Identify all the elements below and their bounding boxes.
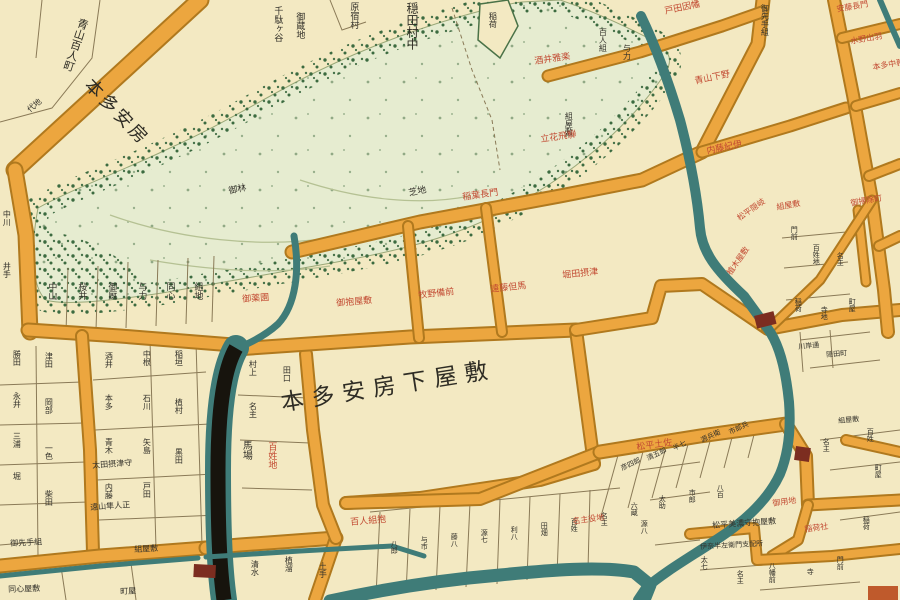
map-label-black: 馬場 [240,440,250,460]
map-label-black: 御林 [228,184,248,197]
map-label-black: 八百 [716,484,723,498]
map-label-black: 稲垣 [174,350,182,366]
map-label-black: 松平美濃守抱屋敷 [712,518,776,531]
map-label-black: 百人組 [598,28,606,52]
map-label-red: 内藤紀伊 [706,141,743,158]
map-label-black: 原宿村 [348,2,357,29]
map-label-black: 清水 [250,560,258,576]
map-label-black: 稲荷 [794,298,801,312]
map-label-black: 田畑 [540,522,547,536]
map-label-black: 百姓地 [812,244,819,265]
map-label-black: 芝地 [408,186,428,199]
map-label-red: 稲葉長門 [462,189,499,203]
map-label-red: 安藤長門 [836,0,869,14]
map-label-black: 組屋敷 [838,416,860,425]
village-name-label: 穏田村中 [404,2,421,50]
map-label-black: 一色 [44,444,52,460]
map-label-black: 隠田町 [826,350,848,359]
map-label-red: 組屋敷 [776,200,801,212]
map-label-black: 町屋 [120,587,136,596]
map-label-black: 村上 [248,360,256,376]
map-label-red: 本多中務 [872,58,900,72]
map-label-black: 勝田 [12,350,20,366]
map-label-black: 岡部 [44,398,52,414]
map-label-red: 御薬園 [242,294,270,305]
map-label-black: 与市 [420,536,427,550]
map-label-black: 町屋 [848,298,855,312]
map-label-red: 酒井雅楽 [534,53,571,67]
map-label-black: 千駄ヶ谷 [272,6,281,42]
map-label-black: 八幡前 [768,562,775,583]
map-label-black: 柴田 [44,490,52,506]
map-label-red: 水野出羽 [850,32,883,46]
edo-kiriezu-map: 本多安房下屋敷 本多安房 穏田村中 青山百人町 千駄ヶ谷御蔵地原宿村稲荷御先手組… [0,0,900,600]
map-label-black: 植村 [174,398,182,414]
map-label-red: 牧野備前 [418,288,455,301]
street-name-label: 青山百人町 [59,16,91,73]
map-label-black: 彦四郎 [620,457,642,472]
map-label-black: 川岸通 [798,342,820,351]
map-label-black: 稲荷 [862,516,869,530]
estate-title-honda-awa: 本多安房 [79,72,156,150]
map-label-black: 同心 [164,282,173,300]
map-label-black: 半七 [672,440,688,453]
map-label-black: 寺地 [820,306,827,320]
map-label-black: 市郎兵 [728,421,750,436]
map-label-black: 名主 [822,438,829,452]
map-label-black: 与力 [622,44,630,60]
map-label-red: 百姓地 [266,442,275,469]
map-label-red: 立花飛騨 [540,131,577,145]
map-label-red: 松平隠岐 [736,198,767,223]
map-label-black: 源八 [640,520,647,534]
map-label-black: 黒田 [174,448,182,464]
map-label-black: 中川 [2,210,10,226]
map-label-black: 遠山隼人正 [90,501,130,512]
map-label-black: 中根 [142,350,150,366]
map-label-black: 利八 [510,526,517,540]
map-label-black: 町屋 [874,464,881,478]
map-label-black: 組屋敷 [134,545,158,555]
estate-title-honda-awa-shimoyashiki: 本多安房下屋敷 [278,350,498,418]
map-label-red: 稲荷社 [804,523,829,535]
map-label-red: 百人組抱 [350,516,387,528]
map-label-black: 源七 [480,529,487,543]
map-label-black: 青木 [104,438,112,454]
map-labels: 本多安房下屋敷 本多安房 穏田村中 青山百人町 千駄ヶ谷御蔵地原宿村稲荷御先手組… [0,0,900,600]
map-label-black: 御先手組 [10,538,42,548]
map-label-black: 名主 [836,252,843,266]
map-label-black: 津田 [44,352,52,368]
map-label-black: 伊奈半左衛門支配所 [700,541,763,552]
map-label-black: 市郎 [688,489,695,503]
map-label-red: 遠藤但馬 [490,282,527,295]
map-label-black: 戸田 [142,482,150,498]
map-label-red: 御抱屋敷 [336,297,373,309]
map-label-black: 六蔵 [630,502,637,516]
map-label-red: 堀田摂津 [562,268,599,281]
map-label-black: 内藤 [104,483,112,499]
map-label-black: 矢島 [142,438,150,454]
map-label-black: 酒井 [104,352,112,368]
map-label-black: 組地 [192,282,201,300]
map-label-black: 太田摂津守 [92,459,132,470]
map-label-black: 永井 [12,392,20,408]
map-label-red: 青山下野 [694,71,731,88]
map-label-black: 同心屋敷 [8,585,40,594]
map-label-black: 藤八 [450,533,457,547]
map-label-black: 代地 [26,98,44,115]
map-label-black: 井手 [2,262,10,278]
map-label-red: 御掃除町 [850,194,883,208]
map-label-black: 中山 [46,282,55,300]
map-label-black: 田口 [282,366,290,382]
map-label-black: 御蔵地 [294,12,303,39]
map-label-red: 戸田因幡 [664,1,701,18]
map-label-black: 太七 [700,556,707,570]
map-label-black: 石川 [142,394,150,410]
map-label-black: 門前 [790,226,797,240]
map-label-black: 植溜 [284,556,292,572]
map-label-black: 太助 [658,495,665,509]
map-label-black: 桜井 [76,282,85,300]
map-label-black: 源兵衛 [700,429,722,444]
map-label-black: 堀 [12,472,20,480]
map-label-black: 八郎 [390,540,397,554]
map-label-black: 与力 [136,282,145,300]
map-label-black: 三浦 [12,432,20,448]
map-label-black: 土手 [318,562,326,578]
map-label-red: 植木屋敷 [726,246,751,277]
map-label-black: 名主 [736,570,743,584]
map-label-black: 稲荷 [488,12,496,28]
map-label-black: 門前 [836,556,843,570]
map-label-black: 本多 [104,394,112,410]
map-label-black: 御先手組 [760,4,768,36]
map-label-black: 名主 [248,402,256,418]
map-label-black: 寺 [806,568,813,575]
map-label-black: 御厩 [106,282,115,300]
map-label-red: 御用地 [772,497,797,509]
map-label-black: 百姓 [866,428,873,442]
